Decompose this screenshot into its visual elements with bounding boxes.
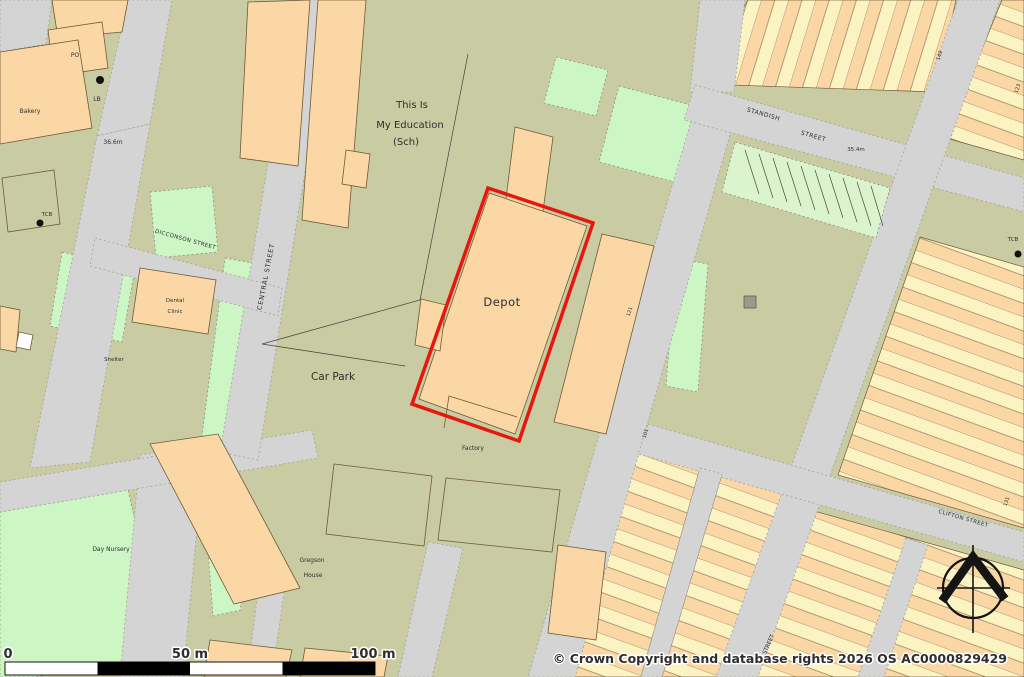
po-label: PO: [71, 52, 80, 59]
tcb-west-dot: [37, 220, 44, 227]
school-label-3: (Sch): [393, 137, 419, 148]
scale-tick-100: 100 m: [350, 647, 395, 662]
dental-clinic-label-1: Dental: [166, 298, 185, 304]
bakery-label: Bakery: [20, 108, 41, 115]
gregson-house-label-1: Gregson: [299, 557, 324, 564]
spot-height-west: 36.6m: [103, 139, 122, 146]
depot-label: Depot: [483, 295, 520, 309]
gregson-house-label-2: House: [304, 572, 323, 579]
car-park-label: Car Park: [311, 371, 356, 383]
tcb-west-label: TCB: [41, 212, 53, 218]
dental-clinic-label-2: Clinic: [168, 309, 183, 315]
scale-tick-0: 0: [3, 647, 12, 662]
spot-height-east: 35.4m: [847, 147, 865, 153]
school-label-1: This Is: [395, 100, 428, 111]
school-label-2: My Education: [376, 120, 444, 131]
attribution: © Crown Copyright and database rights 20…: [553, 651, 1007, 666]
tcb-east-label: TCB: [1007, 237, 1019, 243]
os-map: PO LB Bakery 36.6m TCB DICCONSON STREET …: [0, 0, 1024, 677]
shelter-label: Shelter: [104, 357, 124, 363]
factory-label: Factory: [462, 445, 484, 452]
map-svg: PO LB Bakery 36.6m TCB DICCONSON STREET …: [0, 0, 1024, 677]
tcb-east-dot: [1015, 251, 1022, 258]
lb-label: LB: [93, 96, 100, 103]
letter-box-dot: [96, 76, 104, 84]
day-nursery-label: Day Nursery: [92, 546, 130, 553]
scale-tick-50: 50 m: [172, 647, 208, 662]
